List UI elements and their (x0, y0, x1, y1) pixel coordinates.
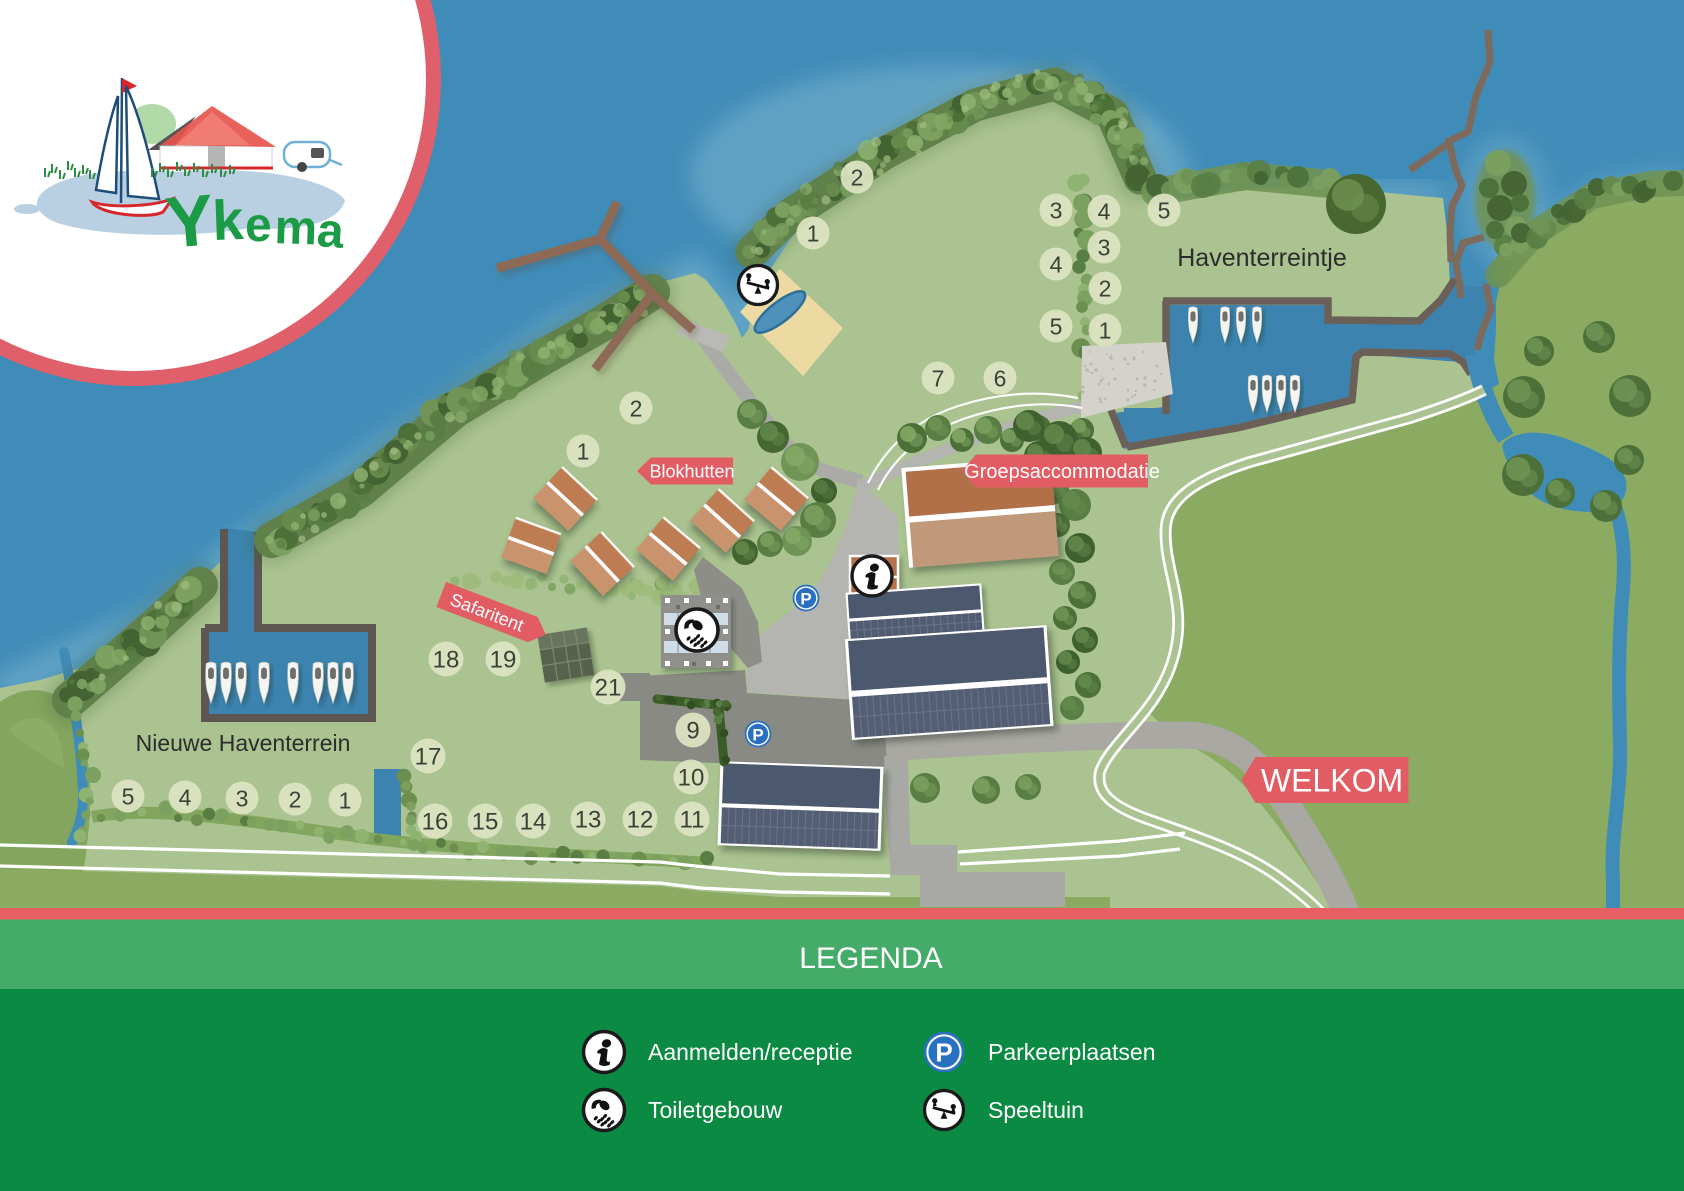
svg-text:LEGENDA: LEGENDA (799, 942, 942, 975)
svg-text:P: P (800, 590, 811, 609)
svg-text:14: 14 (520, 809, 547, 836)
svg-text:5: 5 (122, 783, 135, 809)
svg-text:21: 21 (595, 675, 622, 702)
svg-text:Groepsaccommodatie: Groepsaccommodatie (964, 461, 1160, 483)
svg-text:1: 1 (1099, 317, 1112, 343)
svg-text:Toiletgebouw: Toiletgebouw (648, 1097, 783, 1123)
svg-text:6: 6 (994, 365, 1007, 391)
svg-text:18: 18 (433, 647, 460, 674)
svg-text:Parkeerplaatsen: Parkeerplaatsen (988, 1039, 1156, 1065)
svg-text:5: 5 (1158, 197, 1171, 223)
svg-text:13: 13 (575, 807, 602, 834)
svg-text:4: 4 (1098, 198, 1111, 224)
svg-text:4: 4 (179, 784, 192, 810)
svg-text:11: 11 (680, 807, 705, 834)
svg-text:2: 2 (1099, 275, 1112, 301)
svg-text:2: 2 (289, 786, 302, 812)
svg-text:e: e (245, 199, 272, 252)
svg-text:Y: Y (162, 180, 217, 264)
svg-text:k: k (211, 188, 245, 252)
svg-text:m: m (274, 201, 319, 255)
svg-text:P: P (752, 726, 763, 745)
svg-text:3: 3 (236, 785, 249, 811)
svg-text:16: 16 (422, 809, 449, 836)
svg-text:Blokhutten: Blokhutten (649, 461, 734, 481)
svg-text:19: 19 (490, 647, 517, 674)
svg-text:7: 7 (932, 365, 945, 391)
svg-text:17: 17 (415, 744, 442, 771)
svg-text:1: 1 (807, 220, 820, 246)
svg-text:1: 1 (577, 438, 590, 464)
svg-text:9: 9 (686, 718, 699, 745)
svg-text:P: P (935, 1038, 952, 1068)
svg-text:2: 2 (630, 395, 643, 421)
svg-text:4: 4 (1050, 251, 1063, 277)
svg-text:Speeltuin: Speeltuin (988, 1097, 1084, 1123)
svg-text:1: 1 (339, 787, 352, 813)
svg-text:2: 2 (851, 164, 864, 190)
svg-text:Aanmelden/receptie: Aanmelden/receptie (648, 1039, 853, 1065)
svg-text:15: 15 (472, 809, 499, 836)
svg-text:10: 10 (678, 765, 705, 792)
svg-text:3: 3 (1098, 234, 1111, 260)
svg-text:a: a (315, 204, 346, 259)
svg-text:Nieuwe Haventerrein: Nieuwe Haventerrein (136, 730, 351, 756)
svg-text:WELKOM: WELKOM (1261, 763, 1403, 799)
svg-text:3: 3 (1050, 197, 1063, 223)
svg-text:12: 12 (627, 807, 654, 834)
svg-text:5: 5 (1050, 313, 1063, 339)
svg-text:Haventerreintje: Haventerreintje (1177, 244, 1347, 272)
